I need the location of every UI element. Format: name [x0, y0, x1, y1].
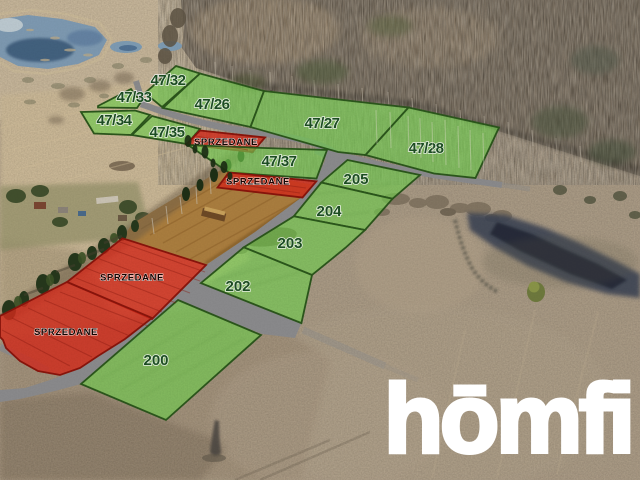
- svg-text:hōmfi: hōmfi: [384, 364, 632, 473]
